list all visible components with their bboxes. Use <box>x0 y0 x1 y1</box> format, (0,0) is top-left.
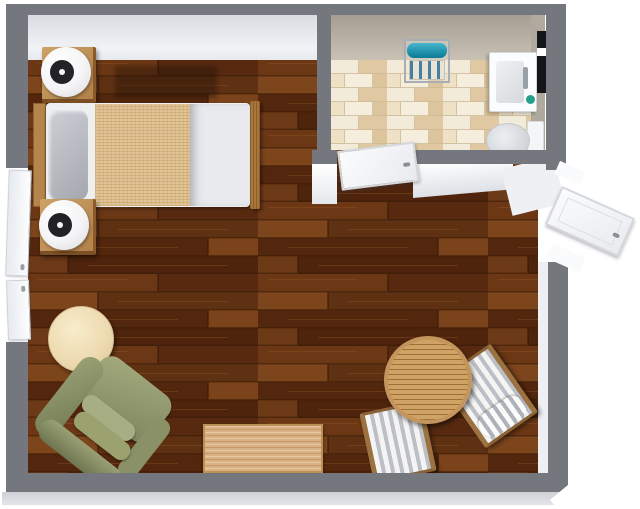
bed-sheet <box>190 104 250 206</box>
door-handle-icon <box>20 264 24 270</box>
wall-left-lower <box>6 342 28 490</box>
wall-outer-face-bottom <box>2 492 574 505</box>
bed-pillow <box>48 110 88 200</box>
wall-bathroom-south-right <box>413 150 553 164</box>
sink-faucet <box>523 67 528 89</box>
wall-face-doorjamb <box>312 164 337 204</box>
bench <box>203 424 323 473</box>
bed-footboard <box>250 101 260 209</box>
bed-headboard <box>33 103 46 207</box>
dining-table <box>384 336 472 424</box>
wall-left-upper <box>6 4 28 168</box>
door-handle-icon <box>403 162 410 167</box>
lamp-icon <box>41 47 91 97</box>
bathroom-sink <box>489 52 537 112</box>
french-door-lower <box>6 280 31 341</box>
wall-top <box>6 4 566 15</box>
floor-plan-canvas <box>0 0 640 509</box>
lamp-bulb <box>57 222 63 228</box>
wall-bathroom-divider <box>317 15 331 164</box>
towel-rack <box>404 39 450 83</box>
wall-face-right-inner <box>538 262 548 473</box>
teal-towel-roll <box>407 43 447 58</box>
folded-towels <box>409 60 445 80</box>
wall-right-lower <box>548 262 568 490</box>
bed <box>33 103 260 207</box>
sink-basin <box>496 61 524 103</box>
bed-blanket <box>95 104 190 206</box>
soap-dish <box>526 95 535 104</box>
door-handle-icon <box>21 286 25 292</box>
french-door-upper <box>5 170 32 277</box>
lamp-bulb <box>59 69 65 75</box>
door-panel-inset <box>557 197 622 245</box>
wall-right-upper <box>546 4 566 170</box>
wall-bottom <box>6 473 568 492</box>
floor-shadow <box>115 66 217 98</box>
wall-bathroom-south-left <box>312 150 337 164</box>
lamp-icon <box>39 200 89 250</box>
